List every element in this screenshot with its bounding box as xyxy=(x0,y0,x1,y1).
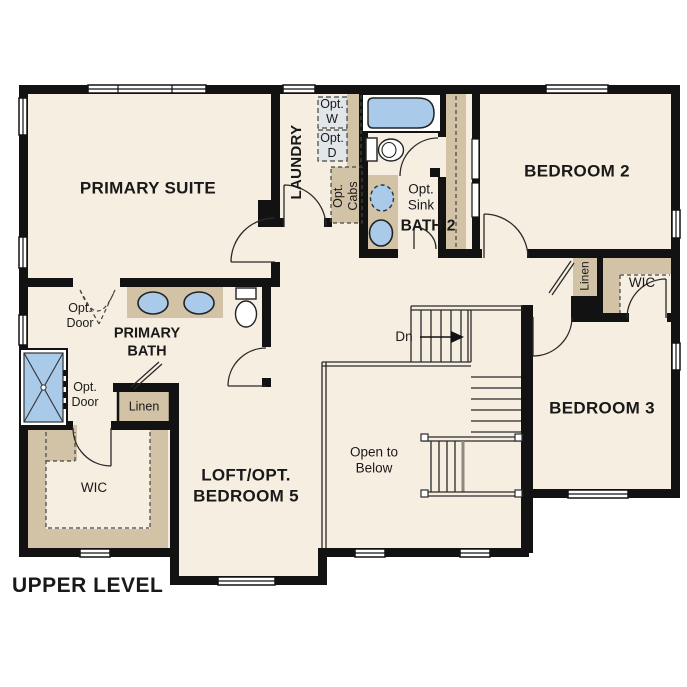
annotation-opt-dryer: Opt. D xyxy=(315,131,349,162)
room-label-wic-right: WIC xyxy=(617,275,667,291)
primary-toilet-tank xyxy=(236,288,256,299)
annotation-opt-door-upper: Opt. Door xyxy=(59,301,101,332)
room-label-wic-left: WIC xyxy=(69,480,119,496)
room-label-open-to-below: Open to Below xyxy=(348,445,400,478)
annotation-opt-washer: Opt. W xyxy=(315,97,349,128)
annotation-opt-cabs: Opt. Cabs xyxy=(331,176,362,216)
wic-left-shelf-bottom xyxy=(28,529,168,548)
bathtub xyxy=(368,98,434,128)
wic-left-shelf-topleft xyxy=(28,425,77,461)
shower-drain xyxy=(41,385,46,390)
room-label-primary-bath: PRIMARY BATH xyxy=(97,325,197,360)
room-label-linen-hall: Linen xyxy=(578,251,593,301)
annotation-opt-door-lower: Opt. Door xyxy=(64,380,106,411)
room-label-primary-suite: PRIMARY SUITE xyxy=(78,179,218,200)
room-label-bedroom-3: BEDROOM 3 xyxy=(492,399,687,420)
level-label: UPPER LEVEL xyxy=(12,574,163,598)
annotation-opt-sink: Opt. Sink xyxy=(399,182,443,215)
room-label-bedroom-2: BEDROOM 2 xyxy=(467,162,687,183)
room-label-loft: LOFT/OPT. BEDROOM 5 xyxy=(157,465,335,506)
bath2-sink xyxy=(370,220,393,246)
annotation-stair-down: Dn xyxy=(389,329,419,345)
primary-sink-left xyxy=(138,292,168,314)
floor-plan: PRIMARY SUITE LAUNDRY Opt. W Opt. D Opt.… xyxy=(0,0,687,687)
primary-toilet-bowl xyxy=(236,301,257,327)
room-label-laundry: LAUNDRY xyxy=(288,107,306,217)
bath2-opt-sink xyxy=(371,185,394,211)
primary-sink-right xyxy=(184,292,214,314)
room-label-bath-2: BATH 2 xyxy=(400,218,456,237)
bath2-toilet-tank xyxy=(366,138,377,161)
room-label-linen-primary: Linen xyxy=(119,399,169,414)
